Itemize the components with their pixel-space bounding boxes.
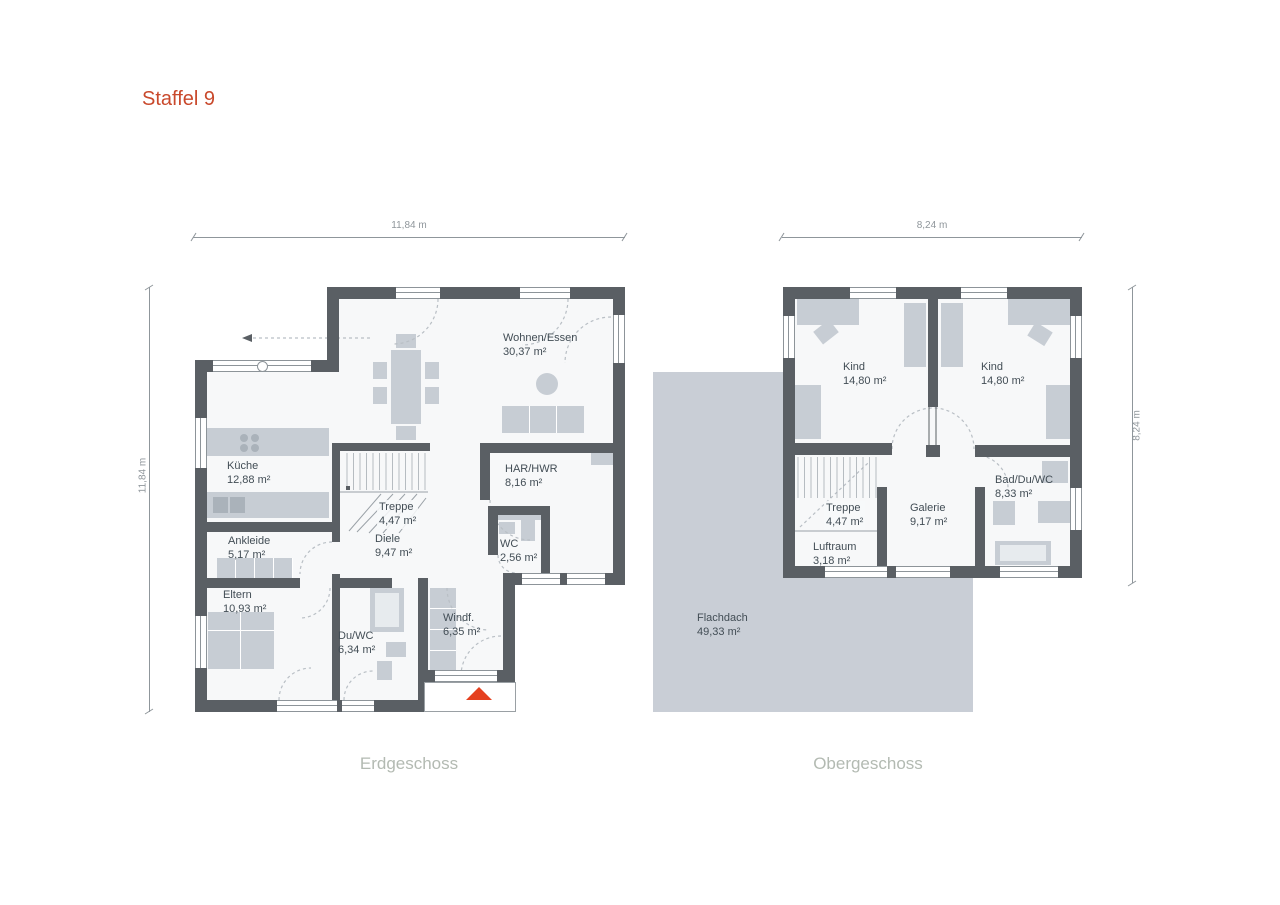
wall bbox=[497, 670, 515, 682]
room-label-diele: Diele 9,47 m² bbox=[375, 532, 412, 561]
window bbox=[195, 418, 207, 468]
washbasin bbox=[386, 642, 406, 657]
window bbox=[396, 287, 440, 299]
room-name: WC bbox=[500, 537, 537, 551]
bed-seam bbox=[208, 630, 274, 631]
dimension-label-og-height: 8,24 m bbox=[1132, 396, 1143, 456]
window bbox=[520, 287, 570, 299]
wall bbox=[503, 585, 515, 682]
room-label-treppe-og: Treppe 4,47 m² bbox=[824, 501, 865, 530]
dimension-label-og-width: 8,24 m bbox=[902, 220, 962, 231]
chair bbox=[425, 362, 439, 379]
room-label-bad-du-wc: Bad/Du/WC 8,33 m² bbox=[995, 473, 1053, 502]
room-name: Eltern bbox=[223, 588, 266, 602]
chair bbox=[373, 362, 387, 379]
kitchen-counter bbox=[207, 428, 329, 456]
room-label-eltern: Eltern 10,93 m² bbox=[223, 588, 266, 617]
room-label-luftraum: Luftraum 3,18 m² bbox=[813, 540, 856, 569]
chair bbox=[373, 387, 387, 404]
cooktop-burner bbox=[251, 444, 259, 452]
interior-wall bbox=[783, 443, 892, 455]
room-name: Galerie bbox=[910, 501, 947, 515]
chair bbox=[396, 334, 416, 348]
room-name: Du/WC bbox=[338, 629, 375, 643]
window bbox=[1070, 316, 1082, 358]
cooktop-burner bbox=[240, 434, 248, 442]
room-area: 4,47 m² bbox=[379, 514, 416, 528]
interior-wall bbox=[480, 443, 625, 453]
room-area: 8,16 m² bbox=[505, 476, 558, 490]
room-area: 8,33 m² bbox=[995, 487, 1053, 501]
toilet bbox=[377, 661, 392, 680]
window bbox=[1070, 488, 1082, 530]
room-label-kind-2: Kind 14,80 m² bbox=[981, 360, 1024, 389]
room-label-kueche: Küche 12,88 m² bbox=[227, 459, 270, 488]
floor-plan-sheet: Staffel 9 bbox=[0, 0, 1280, 905]
entrance-arrow bbox=[466, 687, 492, 700]
wardrobe bbox=[904, 303, 926, 367]
room-area: 6,35 m² bbox=[443, 625, 480, 639]
washbasin bbox=[1038, 501, 1070, 523]
plan-annotations bbox=[0, 0, 1280, 905]
window bbox=[522, 573, 560, 585]
room-name: Windf. bbox=[443, 611, 480, 625]
window bbox=[277, 700, 337, 712]
chair bbox=[396, 426, 416, 440]
room-label-wohnen-essen: Wohnen/Essen 30,37 m² bbox=[503, 331, 577, 360]
desk bbox=[795, 385, 821, 439]
interior-wall bbox=[877, 487, 887, 578]
room-label-flachdach: Flachdach 49,33 m² bbox=[697, 611, 748, 640]
shower-tray bbox=[375, 593, 399, 627]
shower bbox=[993, 501, 1015, 525]
room-area: 49,33 m² bbox=[697, 625, 748, 639]
room-area: 3,18 m² bbox=[813, 554, 856, 568]
window bbox=[342, 700, 374, 712]
interior-wall bbox=[332, 443, 340, 542]
window bbox=[783, 316, 795, 358]
floor-label-erdgeschoss: Erdgeschoss bbox=[309, 754, 509, 774]
interior-wall bbox=[975, 487, 985, 578]
dining-table bbox=[391, 350, 421, 424]
window bbox=[850, 287, 896, 299]
room-name: HAR/HWR bbox=[505, 462, 558, 476]
window-handle bbox=[257, 361, 268, 372]
room-label-wc: WC 2,56 m² bbox=[500, 537, 537, 566]
interior-wall bbox=[195, 578, 300, 588]
room-area: 30,37 m² bbox=[503, 345, 577, 359]
room-name: Küche bbox=[227, 459, 270, 473]
interior-wall bbox=[975, 445, 1082, 457]
window bbox=[435, 670, 497, 682]
room-name: Kind bbox=[981, 360, 1024, 374]
wall bbox=[327, 287, 625, 299]
dimension-line bbox=[149, 287, 150, 712]
stair-marker bbox=[346, 486, 350, 490]
room-area: 14,80 m² bbox=[843, 374, 886, 388]
room-label-kind-1: Kind 14,80 m² bbox=[843, 360, 886, 389]
window bbox=[896, 566, 950, 578]
page-title: Staffel 9 bbox=[142, 88, 215, 111]
window bbox=[1000, 566, 1058, 578]
sliding-door-arrow bbox=[242, 334, 252, 342]
dimension-line bbox=[193, 237, 625, 238]
room-name: Ankleide bbox=[228, 534, 270, 548]
dimension-line bbox=[782, 237, 1082, 238]
dimension-label-eg-width: 11,84 m bbox=[379, 220, 439, 231]
room-area: 12,88 m² bbox=[227, 473, 270, 487]
window bbox=[195, 616, 207, 668]
room-area: 9,47 m² bbox=[375, 546, 412, 560]
interior-wall bbox=[340, 578, 392, 588]
desk bbox=[1046, 385, 1070, 439]
side-table bbox=[536, 373, 558, 395]
room-label-du-wc: Du/WC 6,34 m² bbox=[338, 629, 375, 658]
window bbox=[961, 287, 1007, 299]
dimension-label-eg-height: 11,84 m bbox=[138, 446, 149, 506]
room-area: 4,47 m² bbox=[826, 515, 863, 529]
bed bbox=[1008, 299, 1070, 325]
window bbox=[613, 315, 625, 363]
window bbox=[567, 573, 605, 585]
room-area: 14,80 m² bbox=[981, 374, 1024, 388]
room-area: 6,34 m² bbox=[338, 643, 375, 657]
wardrobe bbox=[941, 303, 963, 367]
kitchen-sink bbox=[213, 497, 228, 513]
room-name: Bad/Du/WC bbox=[995, 473, 1053, 487]
interior-wall bbox=[195, 522, 332, 532]
floor-label-obergeschoss: Obergeschoss bbox=[768, 754, 968, 774]
room-area: 10,93 m² bbox=[223, 602, 266, 616]
room-area: 2,56 m² bbox=[500, 551, 537, 565]
cooktop-burner bbox=[251, 434, 259, 442]
interior-wall bbox=[928, 287, 938, 407]
eg-floor-slab bbox=[327, 287, 625, 585]
room-name: Flachdach bbox=[697, 611, 748, 625]
room-label-galerie: Galerie 9,17 m² bbox=[910, 501, 947, 530]
interior-wall bbox=[541, 506, 550, 573]
washbasin bbox=[499, 522, 515, 534]
bed-seam bbox=[240, 612, 241, 669]
interior-wall bbox=[340, 443, 430, 451]
sofa-seam bbox=[529, 406, 530, 433]
room-area: 9,17 m² bbox=[910, 515, 947, 529]
chair bbox=[425, 387, 439, 404]
interior-wall bbox=[480, 443, 490, 500]
kitchen-sink bbox=[230, 497, 245, 513]
bathtub-inner bbox=[1000, 545, 1046, 561]
room-area: 5,17 m² bbox=[228, 548, 270, 562]
room-name: Wohnen/Essen bbox=[503, 331, 577, 345]
room-name: Kind bbox=[843, 360, 886, 374]
room-label-ankleide: Ankleide 5,17 m² bbox=[228, 534, 270, 563]
room-name: Diele bbox=[375, 532, 412, 546]
room-name: Luftraum bbox=[813, 540, 856, 554]
room-label-treppe-eg: Treppe 4,47 m² bbox=[377, 500, 418, 529]
sofa bbox=[502, 406, 584, 433]
room-name: Treppe bbox=[379, 500, 416, 514]
interior-wall bbox=[488, 506, 498, 555]
room-label-windfang: Windf. 6,35 m² bbox=[443, 611, 480, 640]
interior-wall bbox=[926, 445, 940, 457]
cooktop-burner bbox=[240, 444, 248, 452]
double-bed bbox=[208, 612, 274, 669]
sofa-seam bbox=[556, 406, 557, 433]
room-label-har-hwr: HAR/HWR 8,16 m² bbox=[505, 462, 558, 491]
room-name: Treppe bbox=[826, 501, 863, 515]
